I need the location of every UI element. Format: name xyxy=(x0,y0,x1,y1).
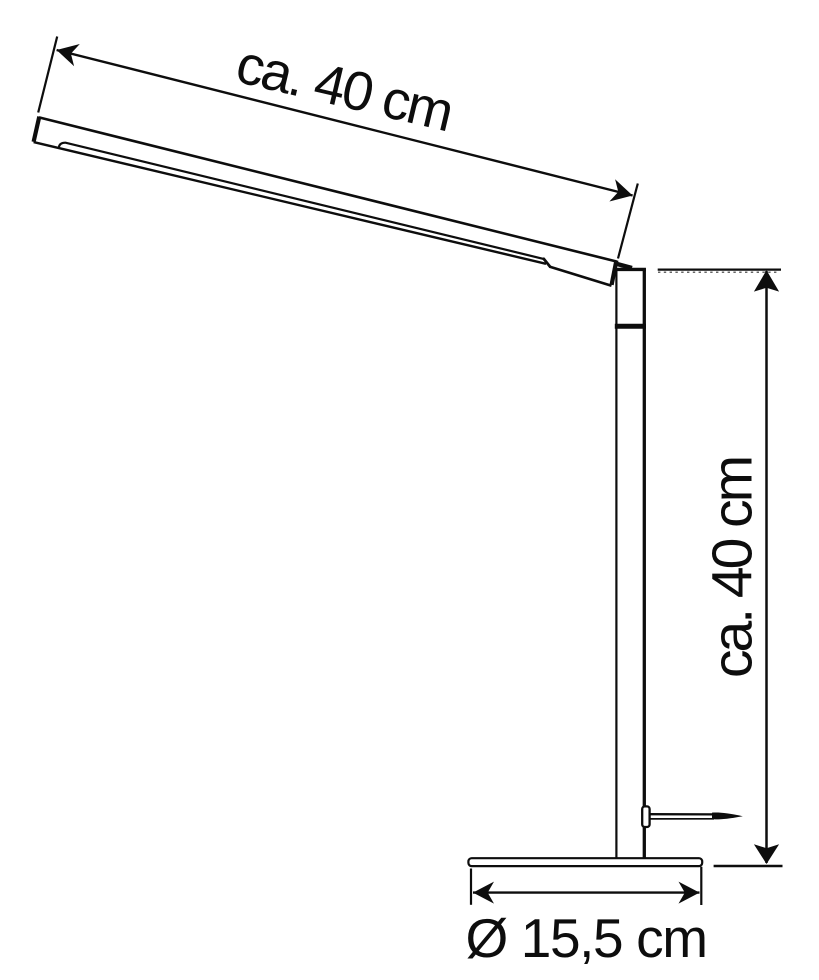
svg-text:ca. 40 cm: ca. 40 cm xyxy=(231,32,458,143)
svg-text:Ø 15,5 cm: Ø 15,5 cm xyxy=(466,907,707,969)
svg-text:ca. 40 cm: ca. 40 cm xyxy=(701,458,765,678)
